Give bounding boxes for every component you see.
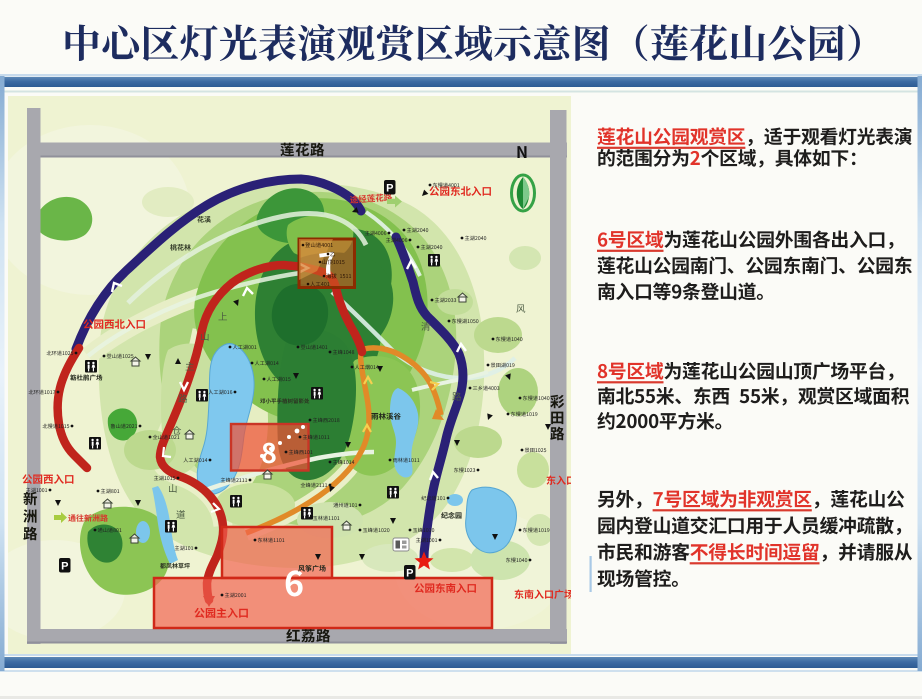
- svg-text:P: P: [61, 561, 68, 573]
- svg-text:P: P: [406, 568, 413, 580]
- svg-text:P: P: [386, 183, 393, 195]
